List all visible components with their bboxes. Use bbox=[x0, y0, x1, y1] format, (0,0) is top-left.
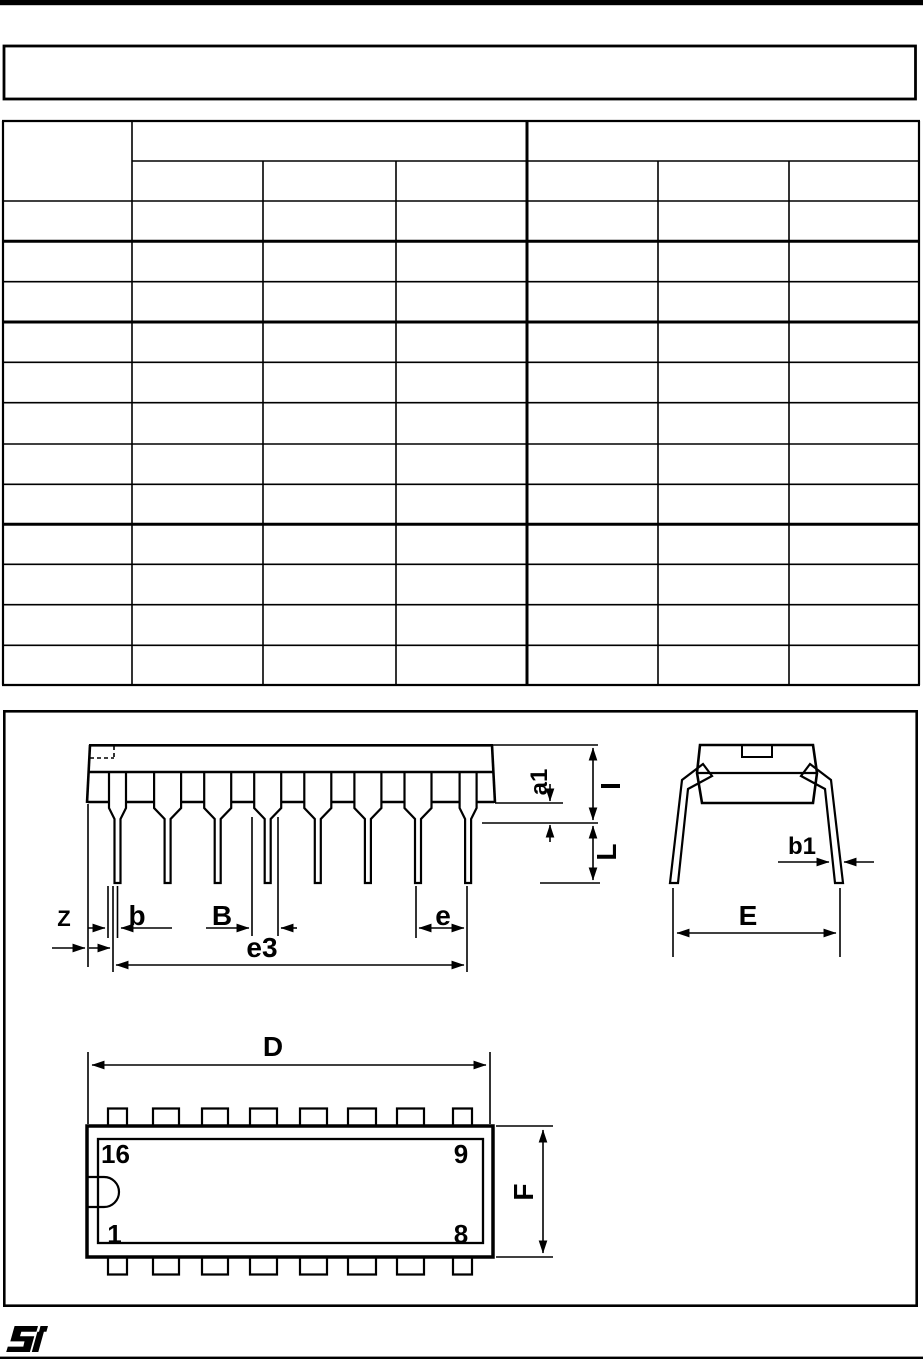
package-side-view bbox=[87, 745, 495, 883]
plan-pin-stub-bottom bbox=[300, 1257, 327, 1275]
dim-label-D: D bbox=[263, 1031, 283, 1062]
plan-pin-stub-bottom bbox=[397, 1257, 424, 1275]
pin-number-1: 1 bbox=[107, 1219, 121, 1249]
plan-pin-stub-bottom bbox=[202, 1257, 228, 1275]
pin-number-9: 9 bbox=[454, 1139, 468, 1169]
plan-view-inner-body bbox=[98, 1139, 483, 1243]
plan-pin-stub-top bbox=[397, 1109, 424, 1127]
plan-pin-stub-top bbox=[108, 1109, 127, 1127]
package-plan-view: 16 9 1 8 bbox=[87, 1109, 493, 1275]
side-view-pin bbox=[204, 772, 231, 883]
spec-table bbox=[2, 121, 920, 685]
plan-view-pin-stubs bbox=[108, 1109, 472, 1275]
dim-label-a1: a1 bbox=[526, 769, 553, 796]
plan-pin-stub-top bbox=[300, 1109, 327, 1127]
pin-number-16: 16 bbox=[101, 1139, 130, 1169]
plan-pin-stub-top bbox=[348, 1109, 376, 1127]
plan-pin-stub-bottom bbox=[153, 1257, 179, 1275]
plan-pin-stub-bottom bbox=[453, 1257, 472, 1275]
side-view-pin bbox=[460, 772, 477, 883]
plan-pin-stub-bottom bbox=[108, 1257, 127, 1275]
dim-label-E: E bbox=[739, 900, 758, 931]
dim-label-B: B bbox=[212, 900, 232, 931]
dim-label-L: L bbox=[591, 843, 622, 860]
bottom-rule bbox=[0, 1357, 923, 1359]
end-view-right-leg bbox=[801, 764, 843, 883]
dim-label-e: e bbox=[435, 900, 451, 931]
plan-pin-stub-top bbox=[250, 1109, 277, 1127]
page-artwork: 16 9 1 8 Z b B e e3 a1 I L b1 E D F bbox=[0, 0, 923, 1362]
plan-pin-stub-bottom bbox=[348, 1257, 376, 1275]
side-view-pin bbox=[109, 772, 126, 883]
dim-label-F: F bbox=[508, 1183, 539, 1200]
dim-label-Z: Z bbox=[57, 906, 70, 931]
top-rule bbox=[0, 0, 923, 5]
title-box bbox=[4, 46, 916, 99]
side-view-pin bbox=[354, 772, 381, 883]
pin-number-8: 8 bbox=[454, 1219, 468, 1249]
plan-pin-stub-top bbox=[202, 1109, 228, 1127]
side-view-pin bbox=[254, 772, 281, 883]
dim-label-b1: b1 bbox=[788, 833, 816, 860]
plan-pin-stub-top bbox=[153, 1109, 179, 1127]
pin1-index-notch bbox=[88, 1177, 119, 1207]
side-view-pin bbox=[154, 772, 181, 883]
side-view-pin bbox=[304, 772, 331, 883]
side-view-pin bbox=[405, 772, 432, 883]
datasheet-page: 16 9 1 8 Z b B e e3 a1 I L b1 E D F bbox=[0, 0, 923, 1362]
st-logo-icon bbox=[6, 1326, 48, 1352]
dim-label-b: b bbox=[128, 900, 145, 931]
end-view-left-leg bbox=[670, 764, 712, 883]
dimension-lines bbox=[52, 745, 874, 1257]
plan-pin-stub-top bbox=[453, 1109, 472, 1127]
end-view-index-notch bbox=[742, 746, 772, 758]
dim-label-e3: e3 bbox=[246, 932, 277, 963]
dim-label-I: I bbox=[595, 782, 626, 790]
plan-view-outer-body bbox=[87, 1126, 493, 1257]
plan-pin-stub-bottom bbox=[250, 1257, 277, 1275]
